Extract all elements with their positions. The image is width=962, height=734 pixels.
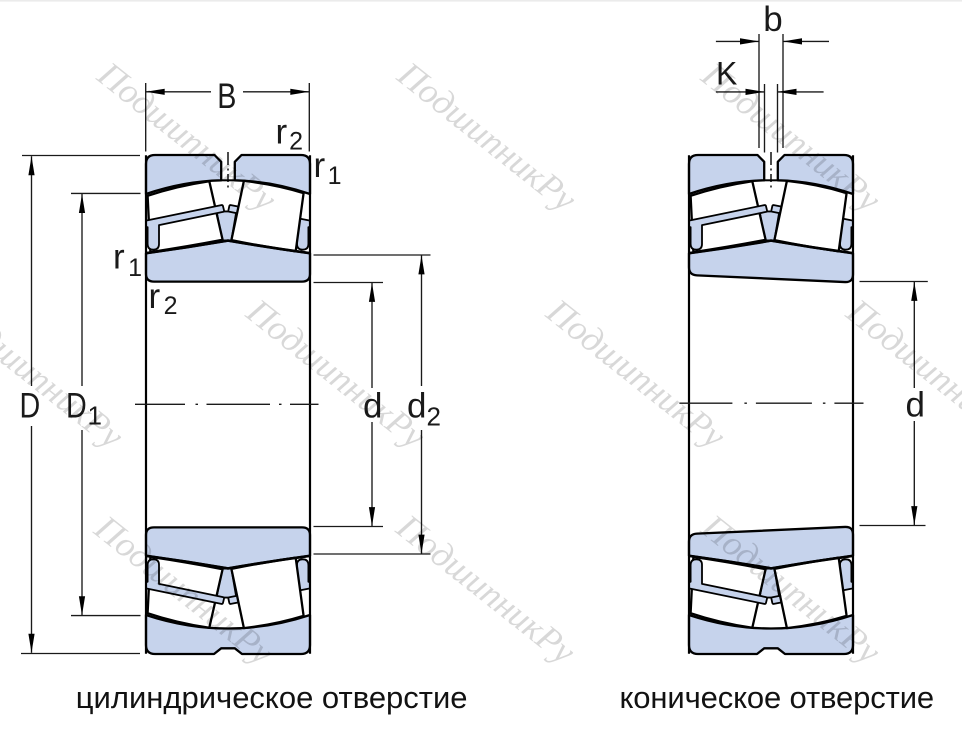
svg-text:d: d: [906, 386, 925, 425]
svg-text:b: b: [763, 0, 782, 39]
svg-text:B: B: [217, 76, 236, 115]
svg-text:цилиндрическое отверстие: цилиндрическое отверстие: [76, 680, 468, 715]
svg-text:коническое отверстие: коническое отверстие: [620, 680, 935, 715]
